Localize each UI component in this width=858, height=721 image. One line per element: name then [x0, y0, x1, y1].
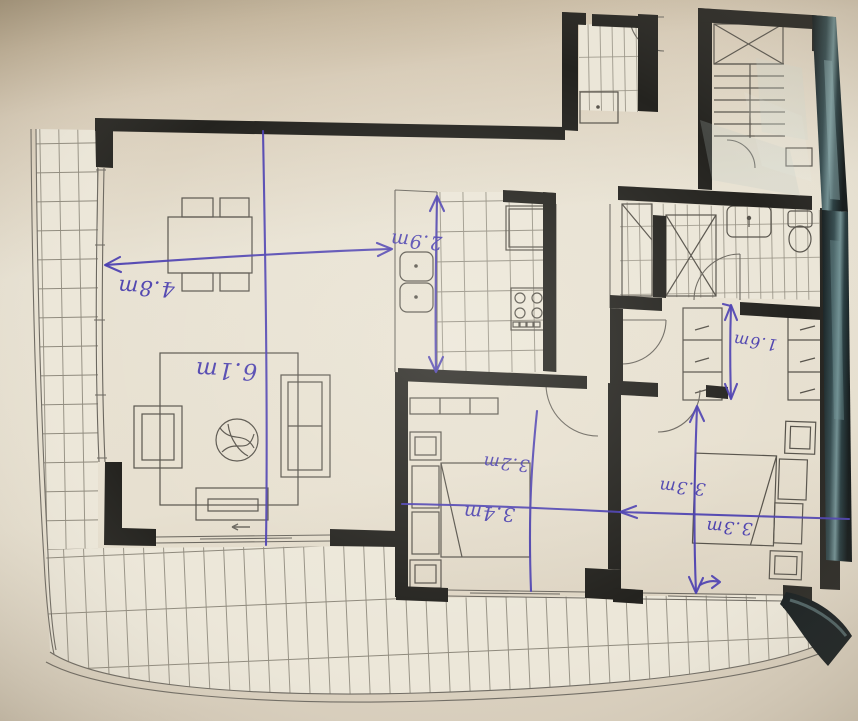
photo-vignette: [0, 0, 858, 721]
floor-plan-drawing: 4.8m 2.9m 6.1m 3.2m 3.4m 3.3m 3.3m: [0, 0, 858, 721]
floor-plan-photo: 4.8m 2.9m 6.1m 3.2m 3.4m 3.3m 3.3m: [0, 0, 858, 721]
